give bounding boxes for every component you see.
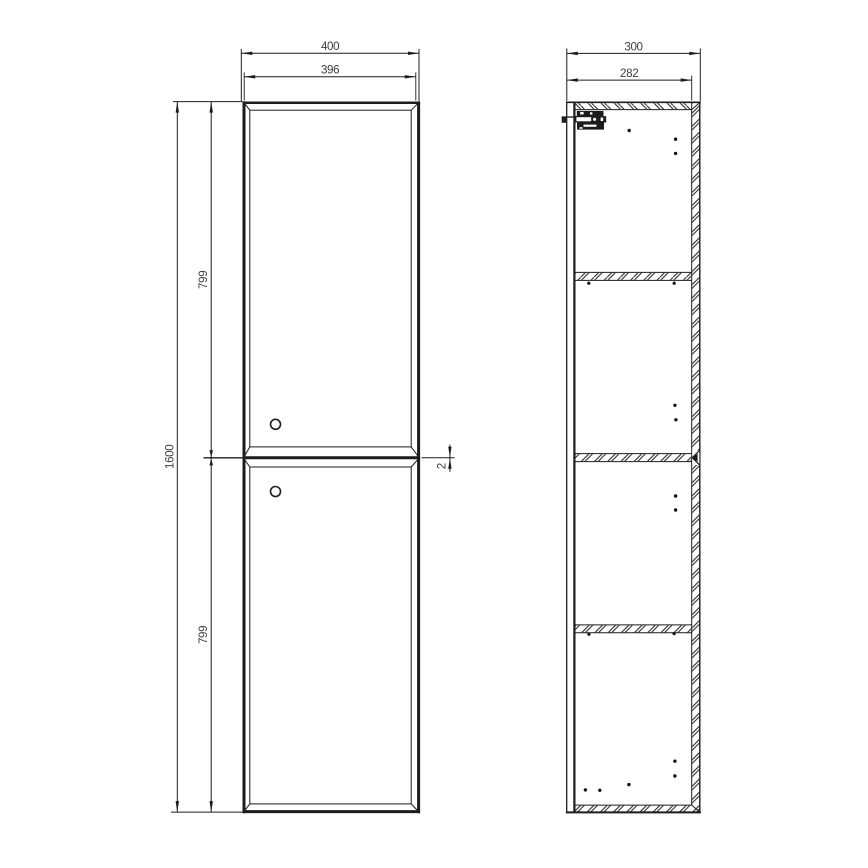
svg-text:2: 2 — [436, 463, 449, 469]
svg-text:300: 300 — [624, 40, 642, 53]
svg-text:400: 400 — [321, 40, 339, 53]
svg-text:1600: 1600 — [164, 445, 177, 469]
svg-text:799: 799 — [197, 271, 210, 289]
svg-text:799: 799 — [197, 626, 210, 644]
svg-text:396: 396 — [321, 64, 339, 77]
svg-text:282: 282 — [620, 67, 638, 80]
